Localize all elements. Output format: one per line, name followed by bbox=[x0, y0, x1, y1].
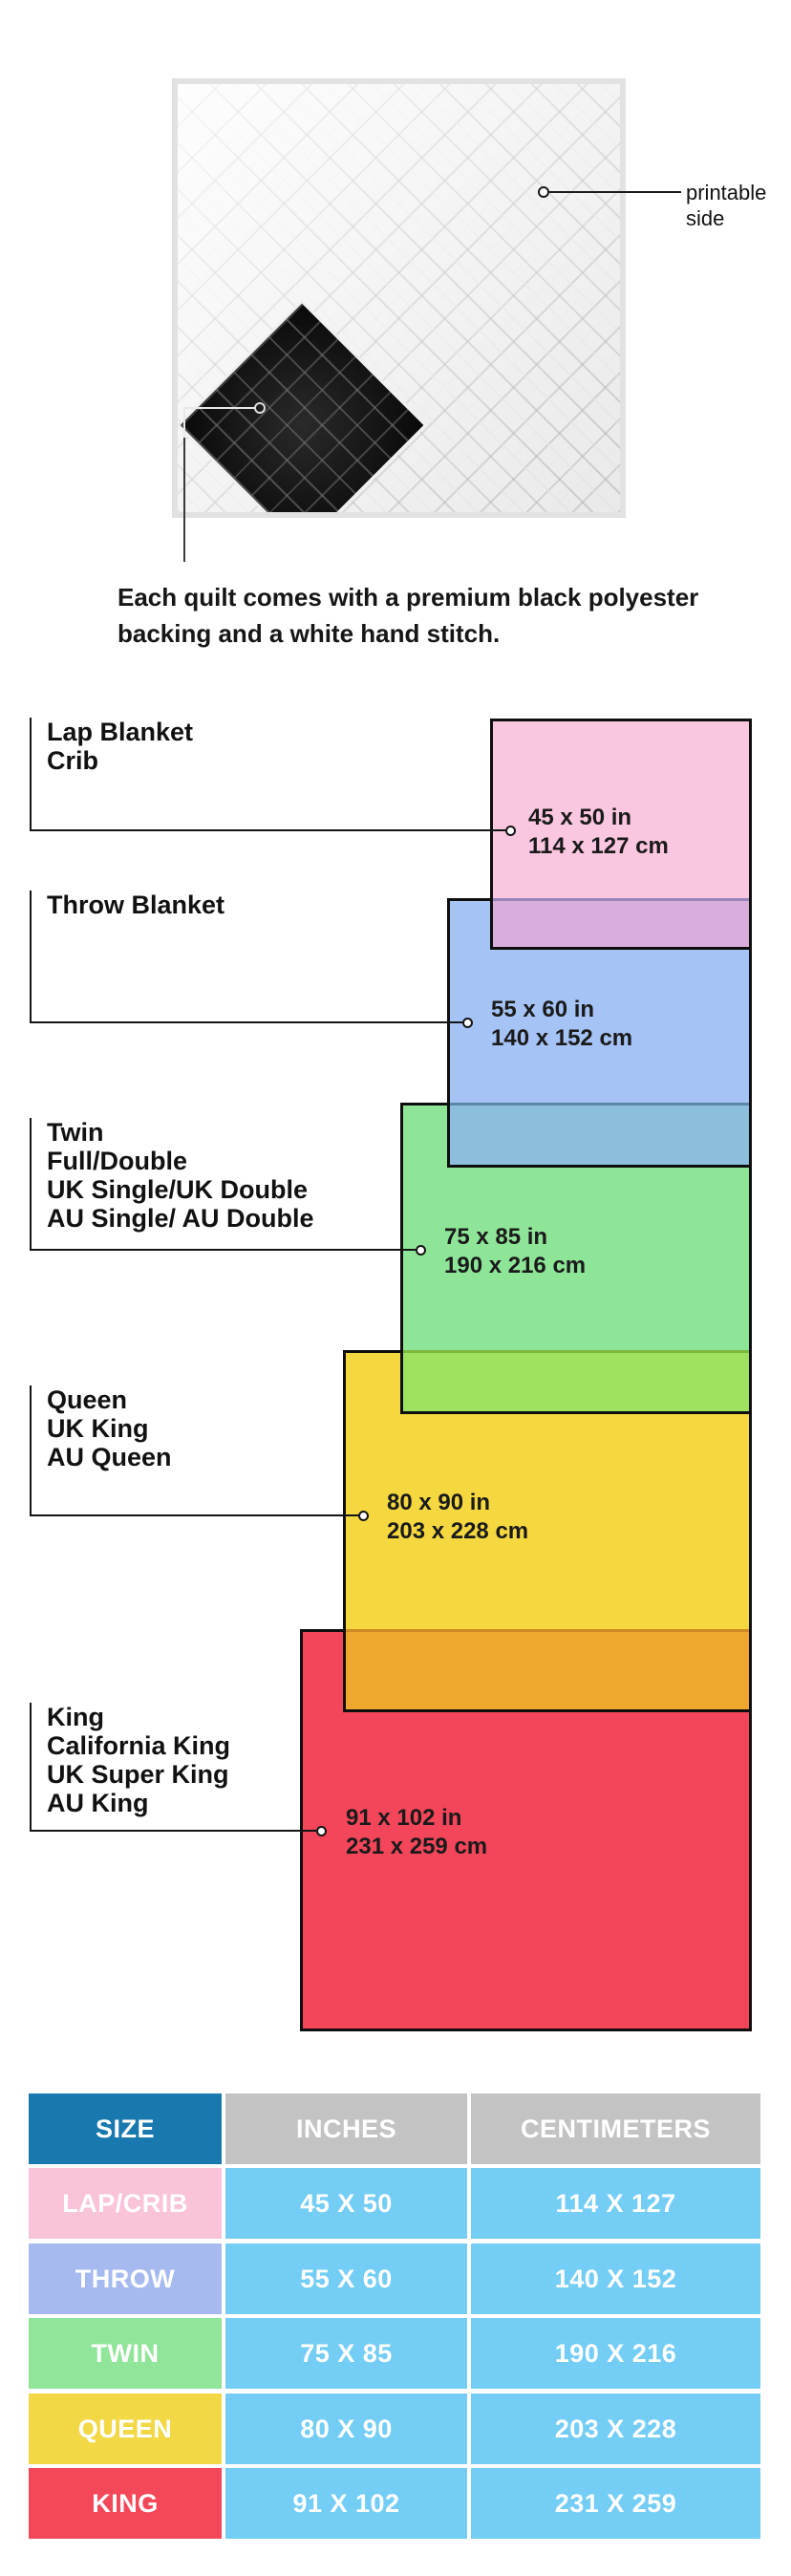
leader-vline-twin bbox=[30, 1118, 32, 1251]
leader-vline-lap bbox=[30, 718, 32, 831]
table-cell: 80 X 90 bbox=[225, 2394, 467, 2464]
size-label-lap: Lap Blanket Crib bbox=[47, 718, 193, 775]
table-header-size: SIZE bbox=[29, 2093, 222, 2164]
printable-side-leader-line bbox=[549, 191, 681, 193]
table-header-centimeters: CENTIMETERS bbox=[471, 2093, 760, 2164]
dim-text-lap: 45 x 50 in 114 x 127 cm bbox=[528, 804, 669, 861]
leader-dot-twin bbox=[416, 1245, 426, 1256]
table-cell: 114 X 127 bbox=[471, 2168, 760, 2239]
overlap-band-queen bbox=[346, 1629, 749, 1709]
backing-leader-line-v2 bbox=[183, 438, 185, 562]
table-row-label-lapcrib: LAP/CRIB bbox=[29, 2168, 222, 2239]
size-label-queen: Queen UK King AU Queen bbox=[47, 1385, 172, 1471]
caption-line1: Each quilt comes with a premium black po… bbox=[118, 583, 698, 612]
dim-text-queen: 80 x 90 in 203 x 228 cm bbox=[387, 1489, 528, 1546]
dim-text-twin: 75 x 85 in 190 x 216 cm bbox=[444, 1223, 586, 1280]
dim-text-throw: 55 x 60 in 140 x 152 cm bbox=[491, 996, 632, 1053]
leader-hline-queen bbox=[30, 1514, 358, 1516]
table-row-label-king: KING bbox=[29, 2468, 222, 2539]
leader-hline-lap bbox=[30, 829, 505, 831]
quilt-front-image bbox=[172, 78, 626, 518]
backing-leader-line-v1 bbox=[183, 407, 185, 438]
table-header-inches: INCHES bbox=[225, 2093, 467, 2164]
size-label-throw: Throw Blanket bbox=[47, 891, 224, 919]
backing-marker-icon bbox=[254, 402, 266, 414]
leader-hline-throw bbox=[30, 1021, 462, 1023]
leader-hline-twin bbox=[30, 1249, 416, 1251]
leader-vline-queen bbox=[30, 1385, 32, 1516]
overlap-band-lap bbox=[493, 898, 749, 947]
table-row-label-queen: QUEEN bbox=[29, 2394, 222, 2464]
table-cell: 203 X 228 bbox=[471, 2394, 760, 2464]
printable-side-label-line2: side bbox=[686, 206, 724, 230]
leader-dot-king bbox=[316, 1826, 327, 1836]
printable-side-label-line1: printable bbox=[686, 181, 766, 204]
table-cell: 55 X 60 bbox=[225, 2243, 467, 2314]
dim-text-king: 91 x 102 in 231 x 259 cm bbox=[346, 1804, 487, 1861]
quilt-caption: Each quilt comes with a premium black po… bbox=[118, 579, 710, 652]
infographic-canvas: printableside Each quilt comes with a pr… bbox=[0, 0, 791, 2576]
table-cell: 190 X 216 bbox=[471, 2318, 760, 2389]
leader-dot-throw bbox=[462, 1018, 473, 1028]
leader-dot-lap bbox=[505, 826, 516, 836]
leader-vline-throw bbox=[30, 891, 32, 1023]
table-cell: 75 X 85 bbox=[225, 2318, 467, 2389]
leader-vline-king bbox=[30, 1703, 32, 1832]
table-cell: 45 X 50 bbox=[225, 2168, 467, 2239]
leader-dot-queen bbox=[358, 1511, 369, 1521]
size-label-king: King California King UK Super King AU Ki… bbox=[47, 1703, 230, 1817]
leader-hline-king bbox=[30, 1830, 316, 1832]
table-row-label-twin: TWIN bbox=[29, 2318, 222, 2389]
printable-side-label: printableside bbox=[686, 180, 766, 231]
size-label-twin: Twin Full/Double UK Single/UK Double AU … bbox=[47, 1118, 314, 1233]
table-cell: 140 X 152 bbox=[471, 2243, 760, 2314]
printable-side-marker-icon bbox=[538, 186, 549, 198]
quilt-black-backing-fold bbox=[181, 304, 424, 518]
backing-leader-line-h bbox=[184, 407, 255, 409]
table-cell: 231 X 259 bbox=[471, 2468, 760, 2539]
overlap-band-throw bbox=[450, 1103, 749, 1165]
table-cell: 91 X 102 bbox=[225, 2468, 467, 2539]
overlap-band-twin bbox=[403, 1350, 749, 1411]
caption-line2: backing and a white hand stitch. bbox=[118, 619, 500, 648]
table-row-label-throw: THROW bbox=[29, 2243, 222, 2314]
